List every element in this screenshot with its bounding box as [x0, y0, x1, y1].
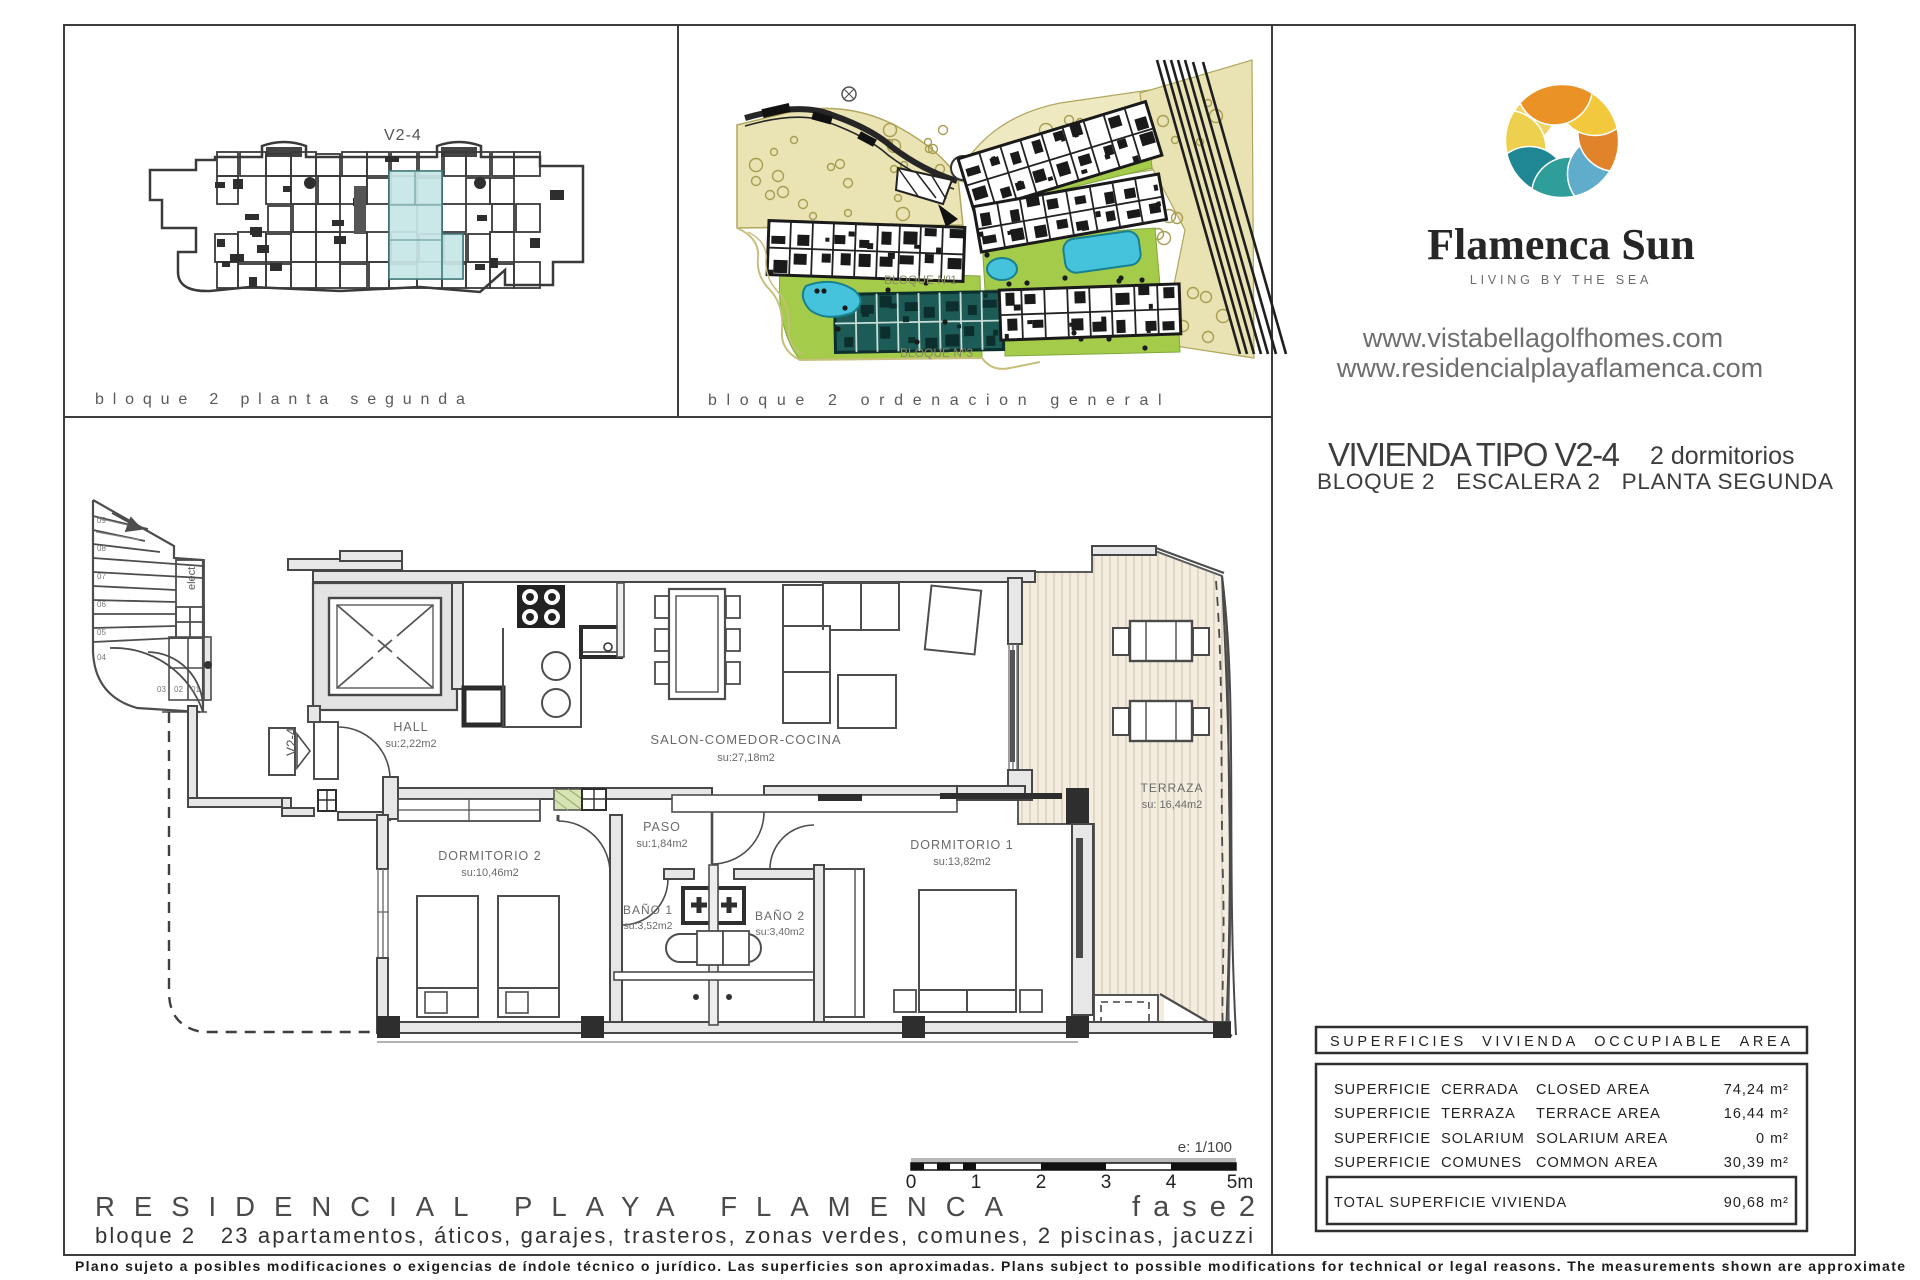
svg-text:b l o q u e 2 o r d e n a: b l o q u e 2 o r d e n a c i o n g e n …: [708, 392, 1164, 409]
svg-text:06: 06: [97, 600, 106, 609]
svg-text:07: 07: [97, 572, 106, 581]
svg-text:3: 3: [1101, 1172, 1112, 1193]
svg-text:SALON-COMEDOR-COCINA: SALON-COMEDOR-COCINA: [650, 732, 841, 747]
svg-text:04: 04: [97, 653, 106, 662]
svg-text:Flamenca Sun: Flamenca Sun: [1427, 220, 1695, 269]
svg-text:SUPERFICIE CERRADA: SUPERFICIE CERRADA: [1334, 1082, 1519, 1098]
svg-text:09: 09: [97, 516, 106, 525]
svg-text:4: 4: [1166, 1172, 1177, 1193]
svg-text:CLOSED AREA: CLOSED AREA: [1536, 1082, 1650, 1098]
svg-text:90,68 m²: 90,68 m²: [1724, 1195, 1789, 1211]
svg-text:SUPERFICIE TERRAZA: SUPERFICIE TERRAZA: [1334, 1106, 1516, 1122]
svg-text:BLOQUE Nº1: BLOQUE Nº1: [884, 273, 957, 287]
svg-text:V2-4: V2-4: [384, 127, 422, 144]
svg-text:BLOQUE 2 ESCALERA 2 PLANTA: BLOQUE 2 ESCALERA 2 PLANTA SEGUNDA: [1317, 469, 1833, 494]
svg-text:su:10,46m2: su:10,46m2: [461, 867, 518, 879]
svg-text:su:1,84m2: su:1,84m2: [636, 838, 687, 850]
svg-text:BAÑO 1: BAÑO 1: [623, 903, 673, 917]
svg-text:su: 16,44m2: su: 16,44m2: [1142, 799, 1203, 811]
svg-text:1: 1: [971, 1172, 982, 1193]
svg-text:74,24 m²: 74,24 m²: [1724, 1082, 1789, 1098]
svg-text:www.vistabellagolfhomes.com: www.vistabellagolfhomes.com: [1362, 323, 1723, 353]
svg-text:SUPERFICIE SOLARIUM: SUPERFICIE SOLARIUM: [1334, 1131, 1525, 1147]
svg-text:30,39 m²: 30,39 m²: [1724, 1155, 1789, 1171]
svg-text:2: 2: [1036, 1172, 1047, 1193]
svg-text:TERRACE AREA: TERRACE AREA: [1536, 1106, 1661, 1122]
svg-text:bloque 2 23 apartamentos, át: bloque 2 23 apartamentos, áticos, garaje…: [95, 1223, 1253, 1248]
svg-text:SOLARIUM AREA: SOLARIUM AREA: [1536, 1131, 1668, 1147]
svg-text:16,44 m²: 16,44 m²: [1724, 1106, 1789, 1122]
svg-text:TERRAZA: TERRAZA: [1140, 781, 1203, 795]
svg-text:su:13,82m2: su:13,82m2: [933, 856, 990, 868]
svg-text:02: 02: [174, 685, 183, 694]
svg-text:www.residencialplayaflamenca.c: www.residencialplayaflamenca.com: [1336, 353, 1763, 383]
svg-text:05: 05: [97, 628, 106, 637]
svg-text:RESIDENCIAL PLAYA FLAMENCA: RESIDENCIAL PLAYA FLAMENCA: [95, 1191, 1022, 1222]
svg-text:fase2: fase2: [1132, 1191, 1268, 1223]
svg-text:HALL: HALL: [393, 720, 428, 734]
svg-text:su:3,52m2: su:3,52m2: [623, 920, 672, 932]
svg-text:DORMITORIO 2: DORMITORIO 2: [438, 849, 541, 863]
svg-text:TOTAL SUPERFICIE VIVIENDA: TOTAL SUPERFICIE VIVIENDA: [1334, 1195, 1567, 1211]
svg-text:b l o q u e 2 p l a n t a: b l o q u e 2 p l a n t a s e g u n d a: [95, 391, 467, 408]
svg-text:su:2,22m2: su:2,22m2: [385, 738, 436, 750]
svg-text:SUPERFICIE COMUNES: SUPERFICIE COMUNES: [1334, 1155, 1522, 1171]
svg-text:DORMITORIO 1: DORMITORIO 1: [910, 838, 1013, 852]
svg-text:e: 1/100: e: 1/100: [1178, 1139, 1232, 1156]
svg-text:08: 08: [97, 544, 106, 553]
svg-text:SUPERFICIES VIVIENDA OCCUPIA: SUPERFICIES VIVIENDA OCCUPIABLE AREA: [1330, 1034, 1792, 1050]
svg-text:PASO: PASO: [643, 820, 681, 834]
svg-text:0: 0: [906, 1172, 917, 1193]
svg-text:elect: elect: [186, 567, 198, 590]
svg-text:BAÑO 2: BAÑO 2: [755, 909, 805, 923]
svg-text:su:3,40m2: su:3,40m2: [755, 926, 804, 938]
svg-text:BLOQUE Nº3: BLOQUE Nº3: [900, 346, 973, 360]
svg-text:03: 03: [157, 685, 166, 694]
svg-text:su:27,18m2: su:27,18m2: [717, 752, 774, 764]
svg-text:COMMON AREA: COMMON AREA: [1536, 1155, 1658, 1171]
svg-text:VIVIENDA TIPO V2-4: VIVIENDA TIPO V2-4: [1328, 436, 1620, 473]
svg-text:Plano sujeto a posibles modifi: Plano sujeto a posibles modificaciones o…: [75, 1258, 1905, 1274]
svg-text:0 m²: 0 m²: [1756, 1131, 1789, 1147]
svg-text:LIVING BY THE SEA: LIVING BY THE SEA: [1470, 273, 1652, 287]
svg-text:2 dormitorios: 2 dormitorios: [1650, 442, 1795, 470]
svg-text:5m: 5m: [1227, 1172, 1253, 1193]
svg-text:01: 01: [191, 685, 200, 694]
